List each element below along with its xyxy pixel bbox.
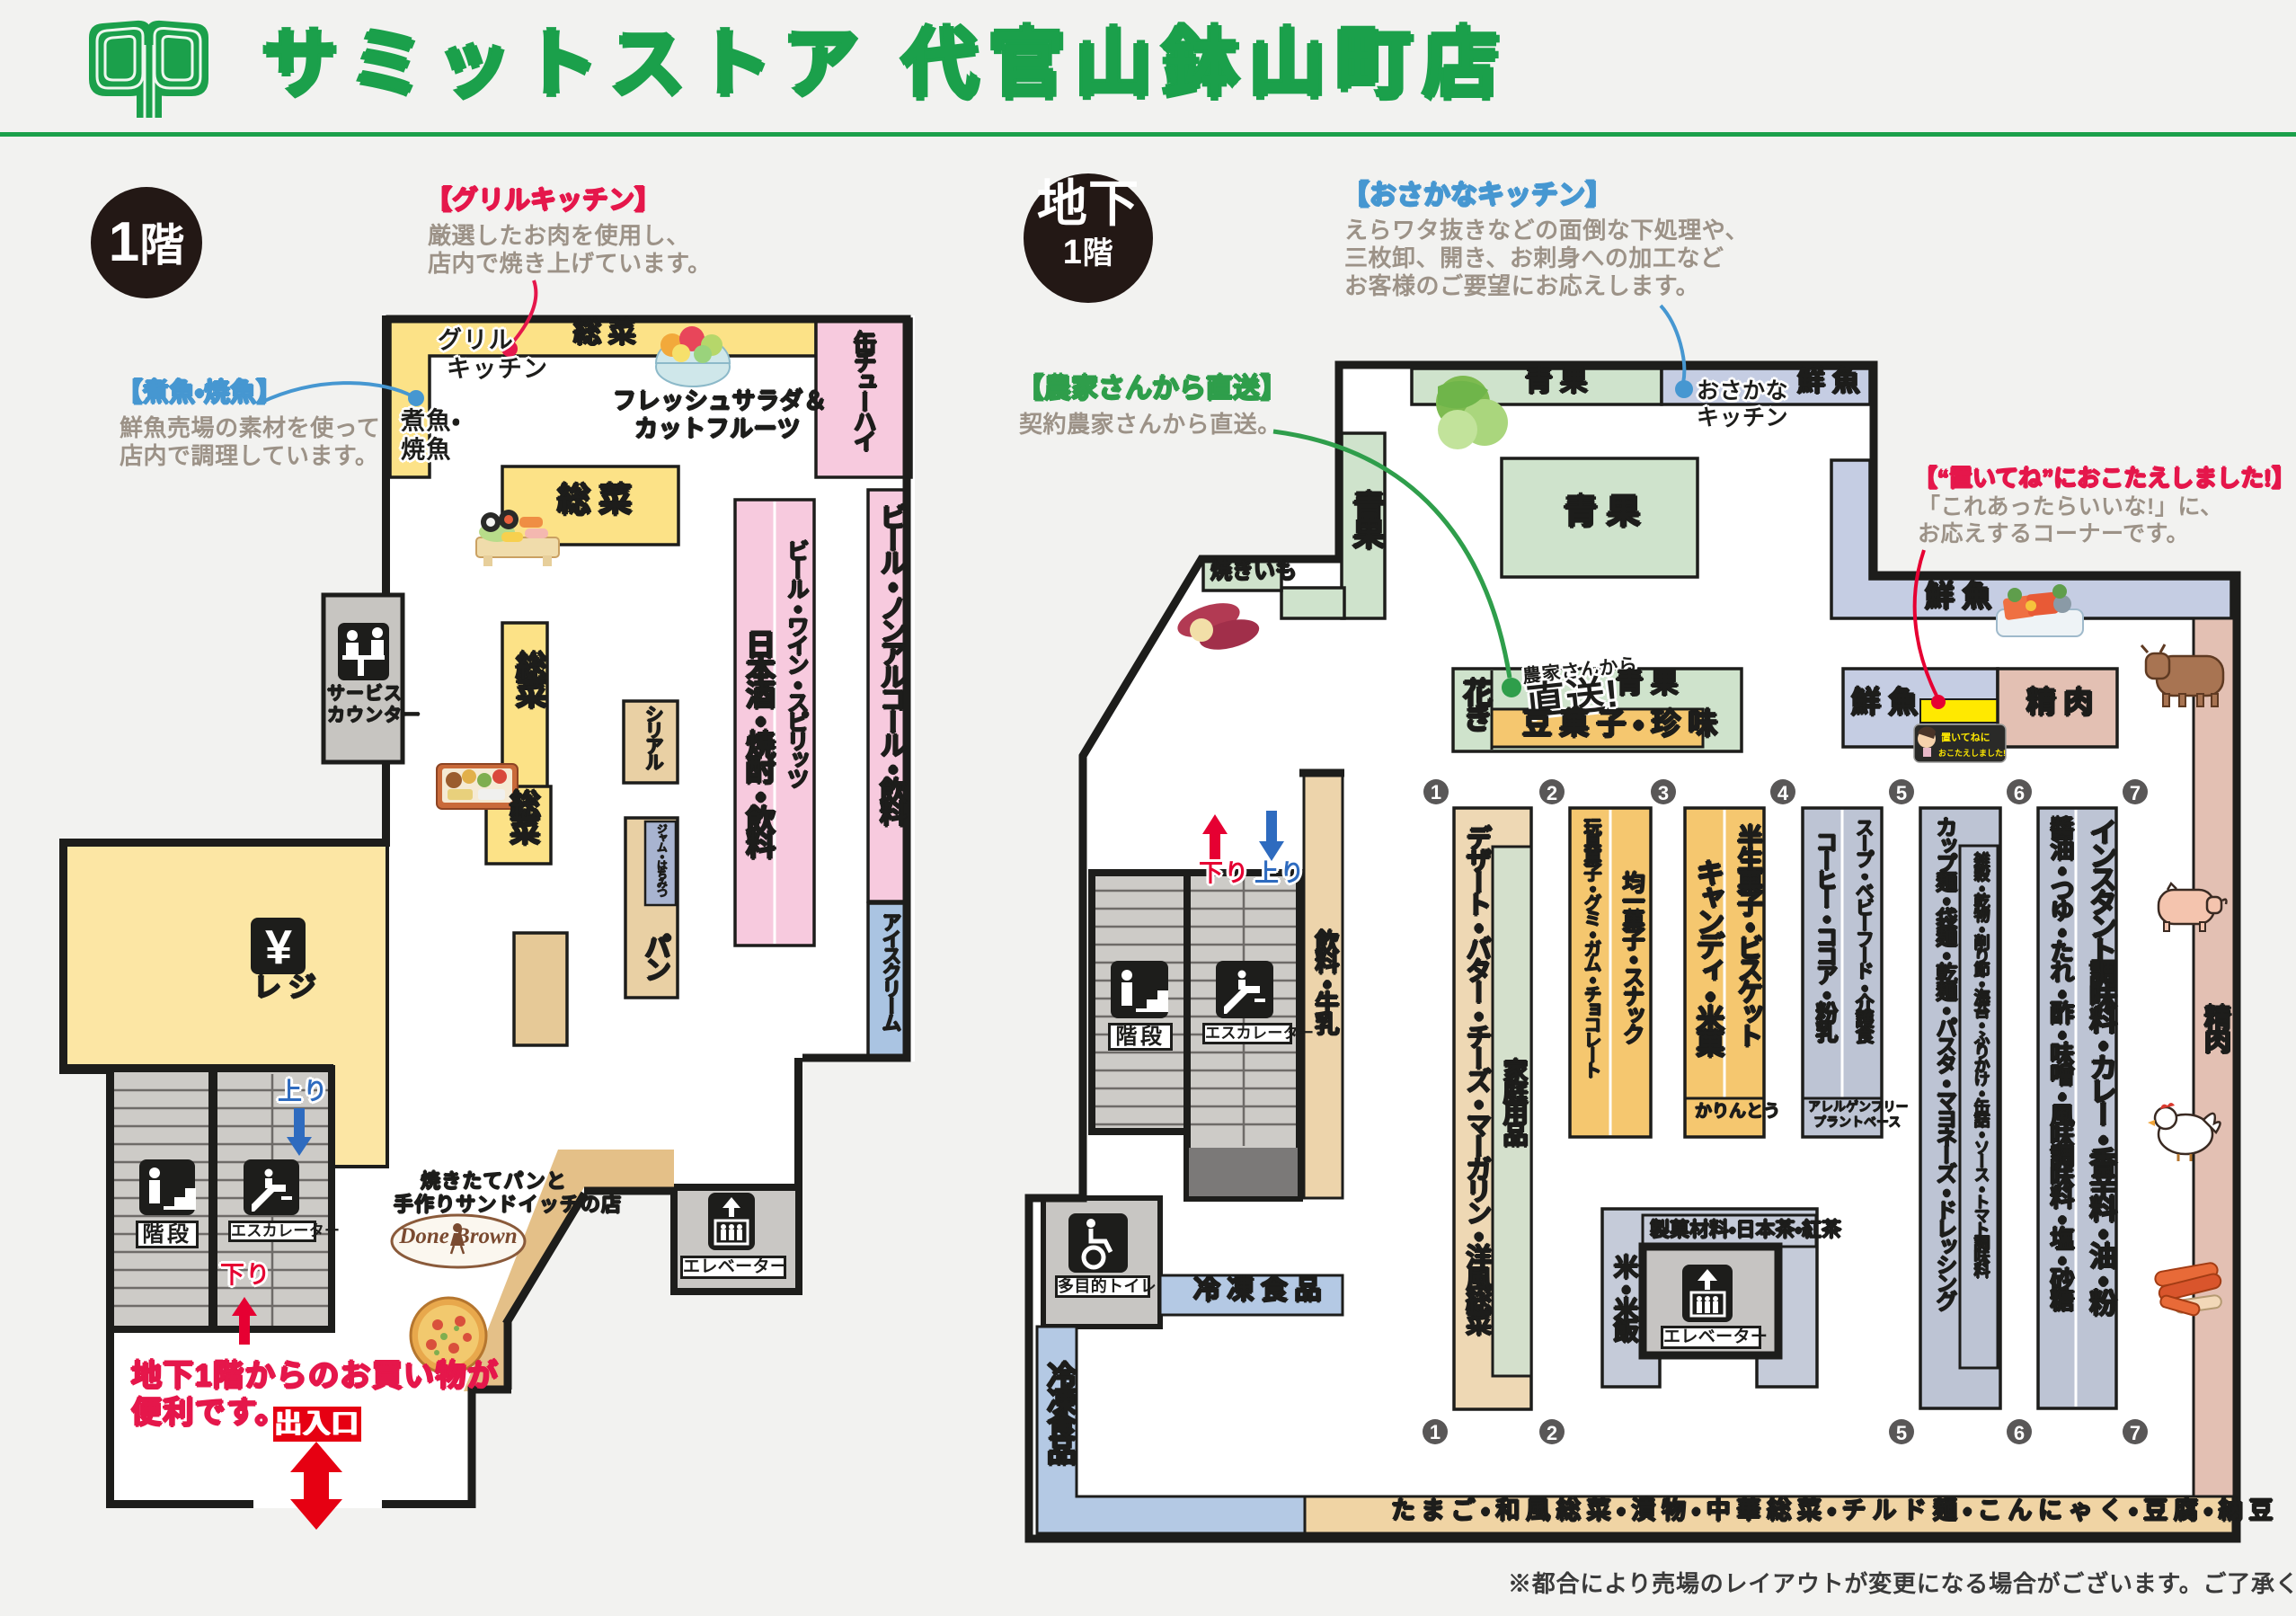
- svg-text:5: 5: [1896, 1422, 1907, 1444]
- svg-text:3: 3: [1658, 782, 1669, 804]
- svg-text:1: 1: [1430, 1421, 1441, 1443]
- svg-text:4: 4: [1777, 782, 1789, 804]
- svg-text:5: 5: [1896, 782, 1907, 804]
- svg-text:置いてねに: 置いてねに: [1941, 732, 1990, 743]
- svg-text:1: 1: [1431, 781, 1441, 804]
- svg-text:2: 2: [1547, 1422, 1557, 1444]
- svg-text:7: 7: [2130, 782, 2141, 804]
- svg-text:6: 6: [2014, 1422, 2025, 1444]
- svg-text:6: 6: [2014, 782, 2025, 804]
- svg-text:おこたえしました!: おこたえしました!: [1938, 749, 2006, 758]
- svg-text:2: 2: [1547, 782, 1557, 804]
- svg-text:7: 7: [2130, 1422, 2141, 1444]
